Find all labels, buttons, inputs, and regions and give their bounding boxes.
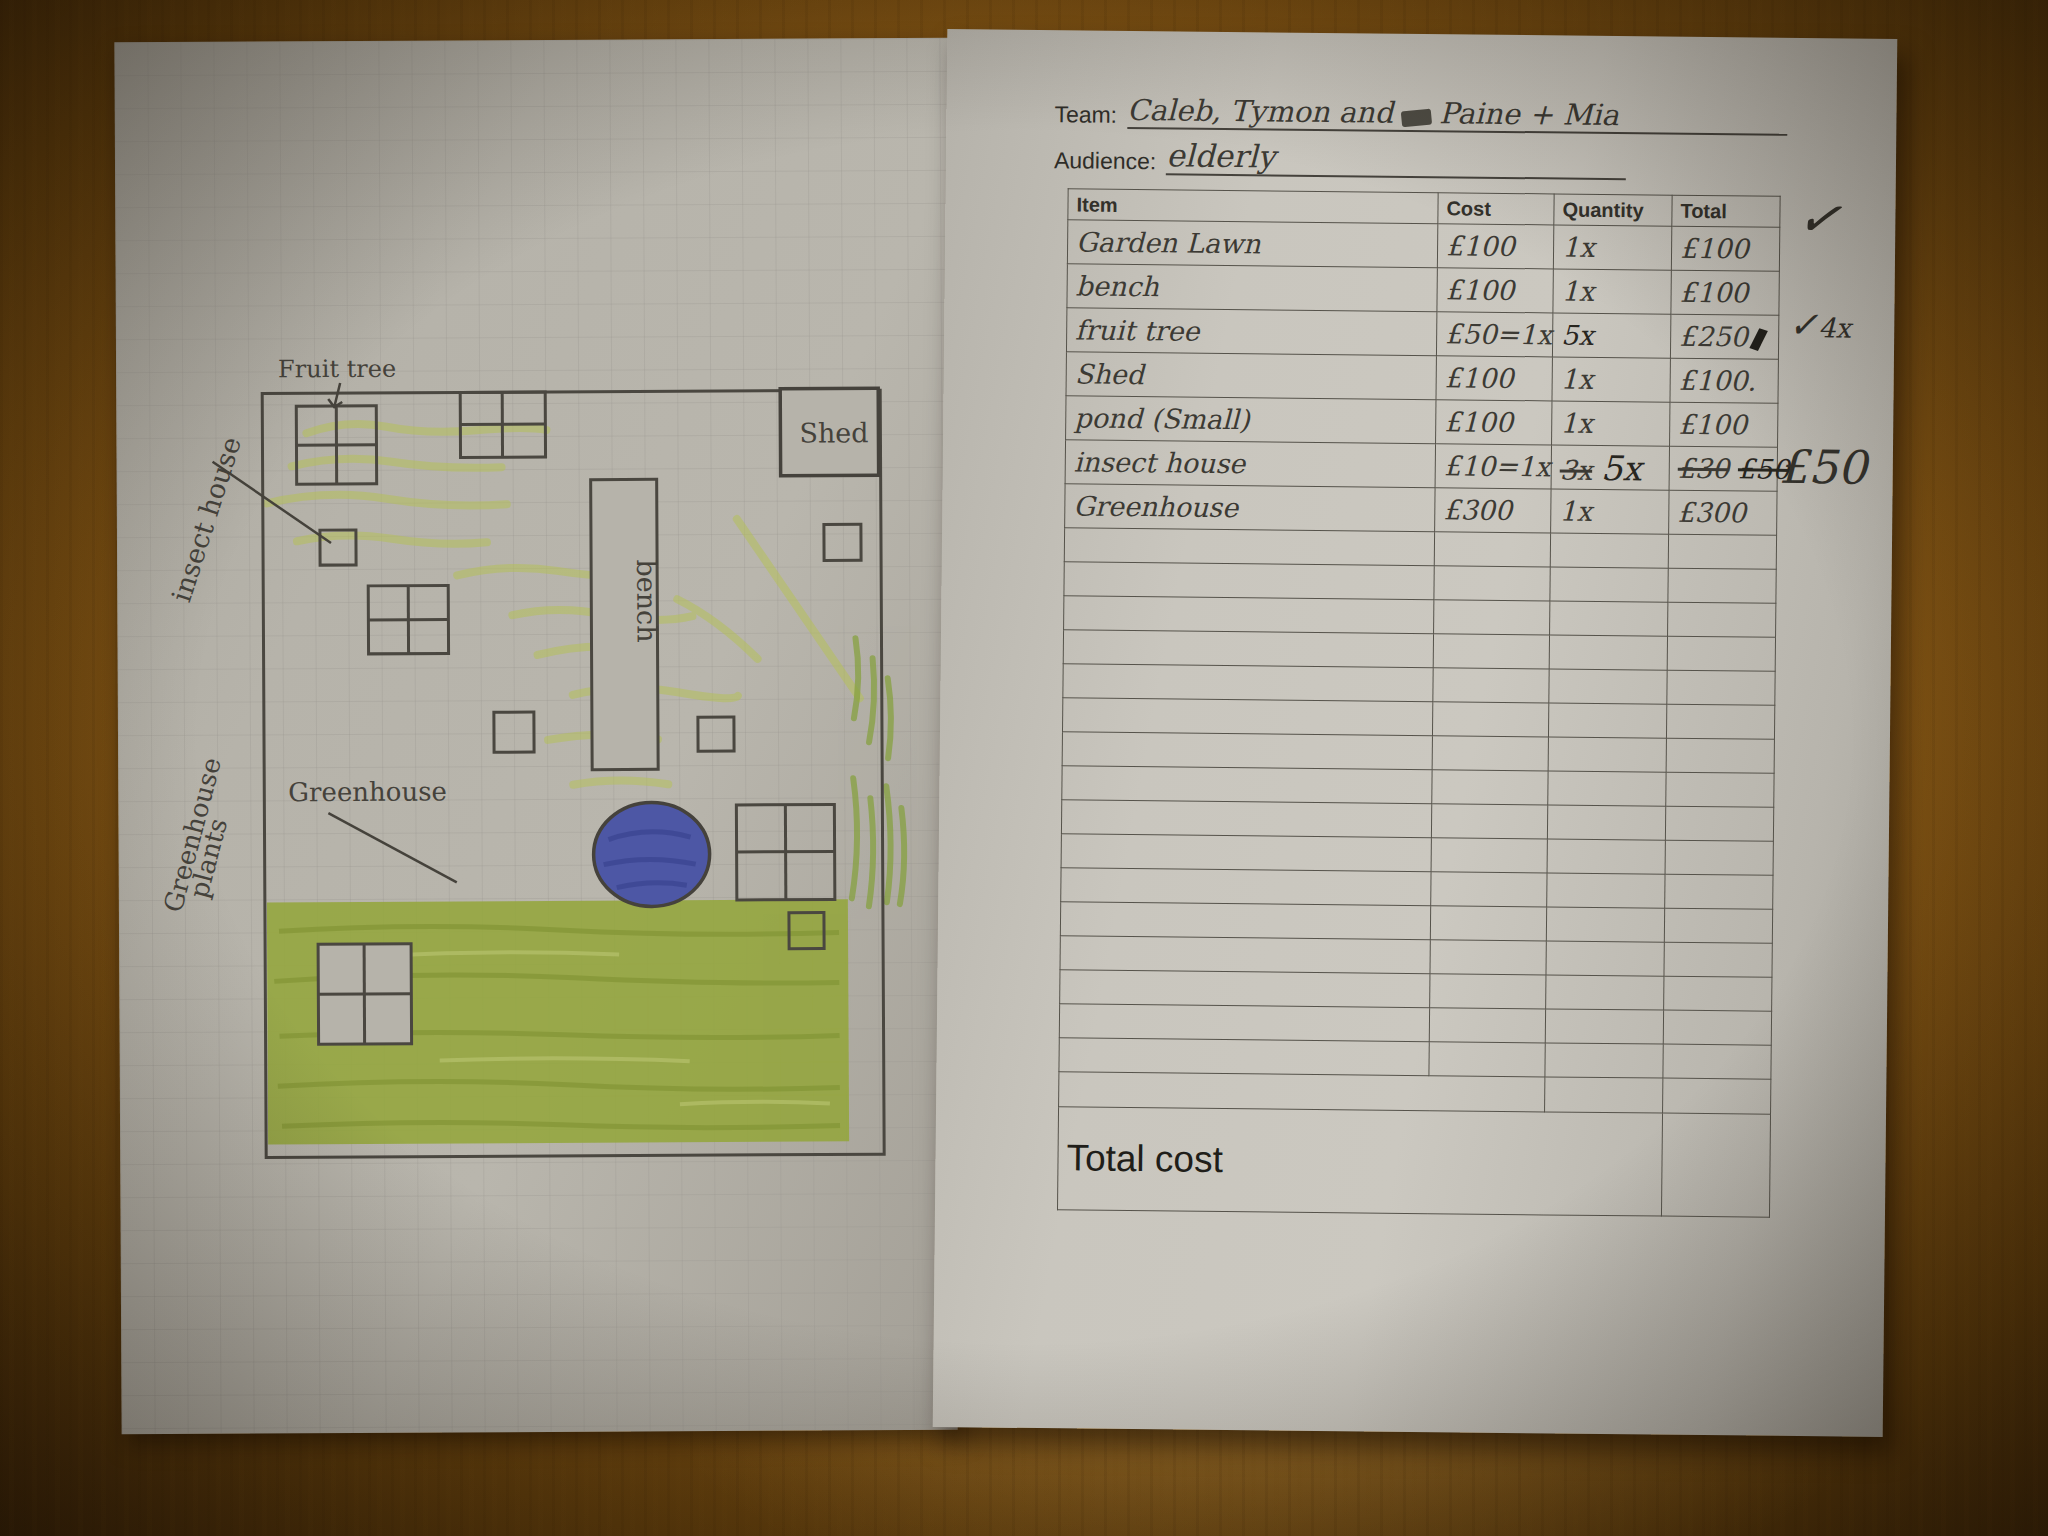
header-quantity: Quantity — [1554, 194, 1672, 226]
empty-cell — [1663, 1010, 1771, 1045]
cost-worksheet-sheet: Team: Caleb, Tymon and Paine + Mia Audie… — [933, 29, 1898, 1437]
cost-cell: £300 — [1435, 488, 1551, 533]
quantity-cell: 1x — [1551, 489, 1669, 534]
empty-cell — [1063, 630, 1433, 668]
cost-cell: £10=1x — [1435, 444, 1551, 489]
item-cell: Shed — [1066, 352, 1436, 400]
cost-cell: £50=1x — [1436, 312, 1552, 357]
empty-cell — [1666, 704, 1774, 739]
empty-cell — [1548, 771, 1666, 806]
empty-cell — [1668, 602, 1776, 637]
empty-cell — [1432, 770, 1548, 805]
empty-cell — [1434, 532, 1550, 567]
empty-cell — [1060, 936, 1430, 974]
empty-cell — [1061, 800, 1431, 838]
audience-field: Audience: elderly — [1054, 136, 1627, 180]
total-cell: £100 — [1670, 402, 1778, 447]
empty-cell — [1547, 839, 1665, 874]
total-value: £250 — [1679, 321, 1748, 353]
team-value-part1: Caleb, Tymon and — [1127, 93, 1393, 130]
empty-cell — [1434, 566, 1550, 601]
check-4x-annotation: ✓4x — [1788, 304, 1851, 346]
quantity-value: 5x — [1601, 447, 1642, 487]
empty-cell — [1433, 668, 1549, 703]
empty-cell — [1546, 907, 1664, 942]
empty-cell — [1064, 596, 1434, 634]
empty-cell — [1432, 702, 1548, 737]
empty-cell — [1430, 906, 1546, 941]
item-cell: insect house — [1065, 440, 1435, 488]
empty-cell — [1663, 1078, 1771, 1114]
total-cell: £250 — [1670, 314, 1778, 359]
empty-cell — [1545, 1009, 1663, 1044]
quantity-cell: 5x — [1552, 313, 1670, 358]
empty-cell — [1666, 772, 1774, 807]
garden-plan-sheet: Shed bench — [114, 38, 957, 1434]
audience-value: elderly — [1166, 137, 1275, 174]
empty-cell — [1061, 834, 1431, 872]
empty-cell — [1061, 868, 1431, 906]
empty-cell — [1430, 940, 1546, 975]
empty-cell — [1064, 562, 1434, 600]
empty-cell — [1064, 528, 1434, 566]
header-total: Total — [1672, 195, 1780, 227]
empty-cell — [1060, 902, 1430, 940]
item-cell: pond (Small) — [1066, 396, 1436, 444]
empty-cell — [1062, 732, 1432, 770]
empty-cell — [1431, 872, 1547, 907]
pond — [593, 802, 710, 907]
total-cell: £300 — [1669, 490, 1777, 535]
checkmark-annotation: ✓ — [1793, 185, 1845, 251]
empty-cell — [1665, 840, 1773, 875]
empty-cell — [1664, 976, 1772, 1011]
fruit-tree-label: Fruit tree — [278, 355, 396, 384]
item-cell: bench — [1067, 264, 1437, 312]
empty-cell — [1059, 1038, 1429, 1076]
empty-cell — [1062, 766, 1432, 804]
scribbled-out-word — [1400, 109, 1431, 128]
bench-box: bench — [591, 479, 664, 769]
cost-cell: £100 — [1437, 224, 1553, 269]
empty-cell — [1434, 600, 1550, 635]
empty-cell — [1550, 567, 1668, 602]
table-row: fruit tree £50=1x 5x £250 — [1066, 308, 1778, 359]
table-row: Garden Lawn £100 1x £100 — [1067, 220, 1779, 271]
empty-cell — [1667, 670, 1775, 705]
empty-cell — [1550, 533, 1668, 568]
empty-cell — [1546, 975, 1664, 1010]
empty-cell — [1668, 534, 1776, 569]
empty-cell — [1665, 806, 1773, 841]
empty-cell — [1429, 1042, 1545, 1077]
empty-cell — [1062, 698, 1432, 736]
empty-cell — [1549, 635, 1667, 670]
empty-cell — [1664, 942, 1772, 977]
empty-cell — [1433, 634, 1549, 669]
total-cell: £100. — [1670, 358, 1778, 403]
empty-cell — [1545, 1043, 1663, 1078]
header-cost: Cost — [1438, 193, 1554, 225]
bench-label: bench — [631, 559, 662, 642]
cost-table: Item Cost Quantity Total Garden Lawn £10… — [1057, 188, 1781, 1217]
quantity-cell: 1x — [1553, 269, 1671, 314]
struck-quantity: 3x — [1560, 454, 1593, 485]
empty-cell — [1668, 568, 1776, 603]
empty-cell — [1550, 601, 1668, 636]
graph-grid — [114, 38, 957, 1434]
check-icon: ✓ — [1788, 304, 1819, 345]
shed-box: Shed — [780, 388, 878, 476]
table-row: Greenhouse £300 1x £300 — [1065, 484, 1777, 535]
table-row: insect house £10=1x 3x 5x £30 £50 — [1065, 440, 1777, 491]
empty-cell — [1547, 873, 1665, 908]
table-row: Shed £100 1x £100. — [1066, 352, 1778, 403]
table-row: bench £100 1x £100 — [1067, 264, 1779, 315]
empty-cell — [1666, 738, 1774, 773]
quantity-cell: 1x — [1552, 357, 1670, 402]
empty-cell — [1059, 1004, 1429, 1042]
empty-cell — [1663, 1044, 1771, 1079]
total-cell: £100 — [1671, 270, 1779, 315]
shed-label: Shed — [799, 417, 868, 448]
empty-cell — [1548, 703, 1666, 738]
merged-cell — [1059, 1072, 1545, 1112]
item-cell: Garden Lawn — [1067, 220, 1437, 268]
total-cost-label: Total cost — [1057, 1107, 1662, 1216]
cost-cell: £100 — [1436, 400, 1552, 445]
empty-cell — [1664, 908, 1772, 943]
empty-cell — [1432, 736, 1548, 771]
total-cell: £30 £50 — [1669, 446, 1777, 491]
item-cell: fruit tree — [1066, 308, 1436, 356]
struck-total-a: £30 — [1678, 453, 1730, 485]
item-cell: Greenhouse — [1065, 484, 1435, 532]
empty-cell — [1429, 1008, 1545, 1043]
cost-cell: £100 — [1436, 356, 1552, 401]
total-cell: £100 — [1671, 226, 1779, 271]
empty-cell — [1548, 737, 1666, 772]
team-label: Team: — [1054, 101, 1127, 129]
window-square — [318, 944, 412, 1044]
team-value-part2: Paine + Mia — [1439, 96, 1619, 132]
total-cost-value-cell — [1661, 1113, 1770, 1217]
empty-cell — [1060, 970, 1430, 1008]
empty-cell — [1546, 941, 1664, 976]
annotation-4x: 4x — [1818, 312, 1851, 343]
greenhouse-label: Greenhouse — [288, 776, 447, 807]
empty-cell — [1431, 804, 1547, 839]
empty-cell — [1667, 636, 1775, 671]
quantity-cell: 3x 5x — [1551, 445, 1669, 490]
empty-cell — [1431, 838, 1547, 873]
empty-cell — [1665, 874, 1773, 909]
team-field: Team: Caleb, Tymon and Paine + Mia — [1054, 92, 1787, 136]
quantity-cell: 1x — [1552, 401, 1670, 446]
empty-cell — [1545, 1077, 1663, 1113]
pen-tick-mark — [1749, 328, 1767, 351]
empty-cell — [1547, 805, 1665, 840]
total-cost-row: Total cost — [1057, 1107, 1770, 1217]
empty-cell — [1063, 664, 1433, 702]
empty-cell — [1549, 669, 1667, 704]
audience-label: Audience: — [1054, 147, 1167, 175]
empty-cell — [1430, 974, 1546, 1009]
price-annotation: £50 — [1779, 440, 1867, 495]
table-row: pond (Small) £100 1x £100 — [1066, 396, 1778, 447]
header-item: Item — [1068, 189, 1438, 224]
cost-cell: £100 — [1437, 268, 1553, 313]
quantity-cell: 1x — [1553, 225, 1671, 270]
garden-plan-drawing: Shed bench — [114, 38, 957, 1434]
